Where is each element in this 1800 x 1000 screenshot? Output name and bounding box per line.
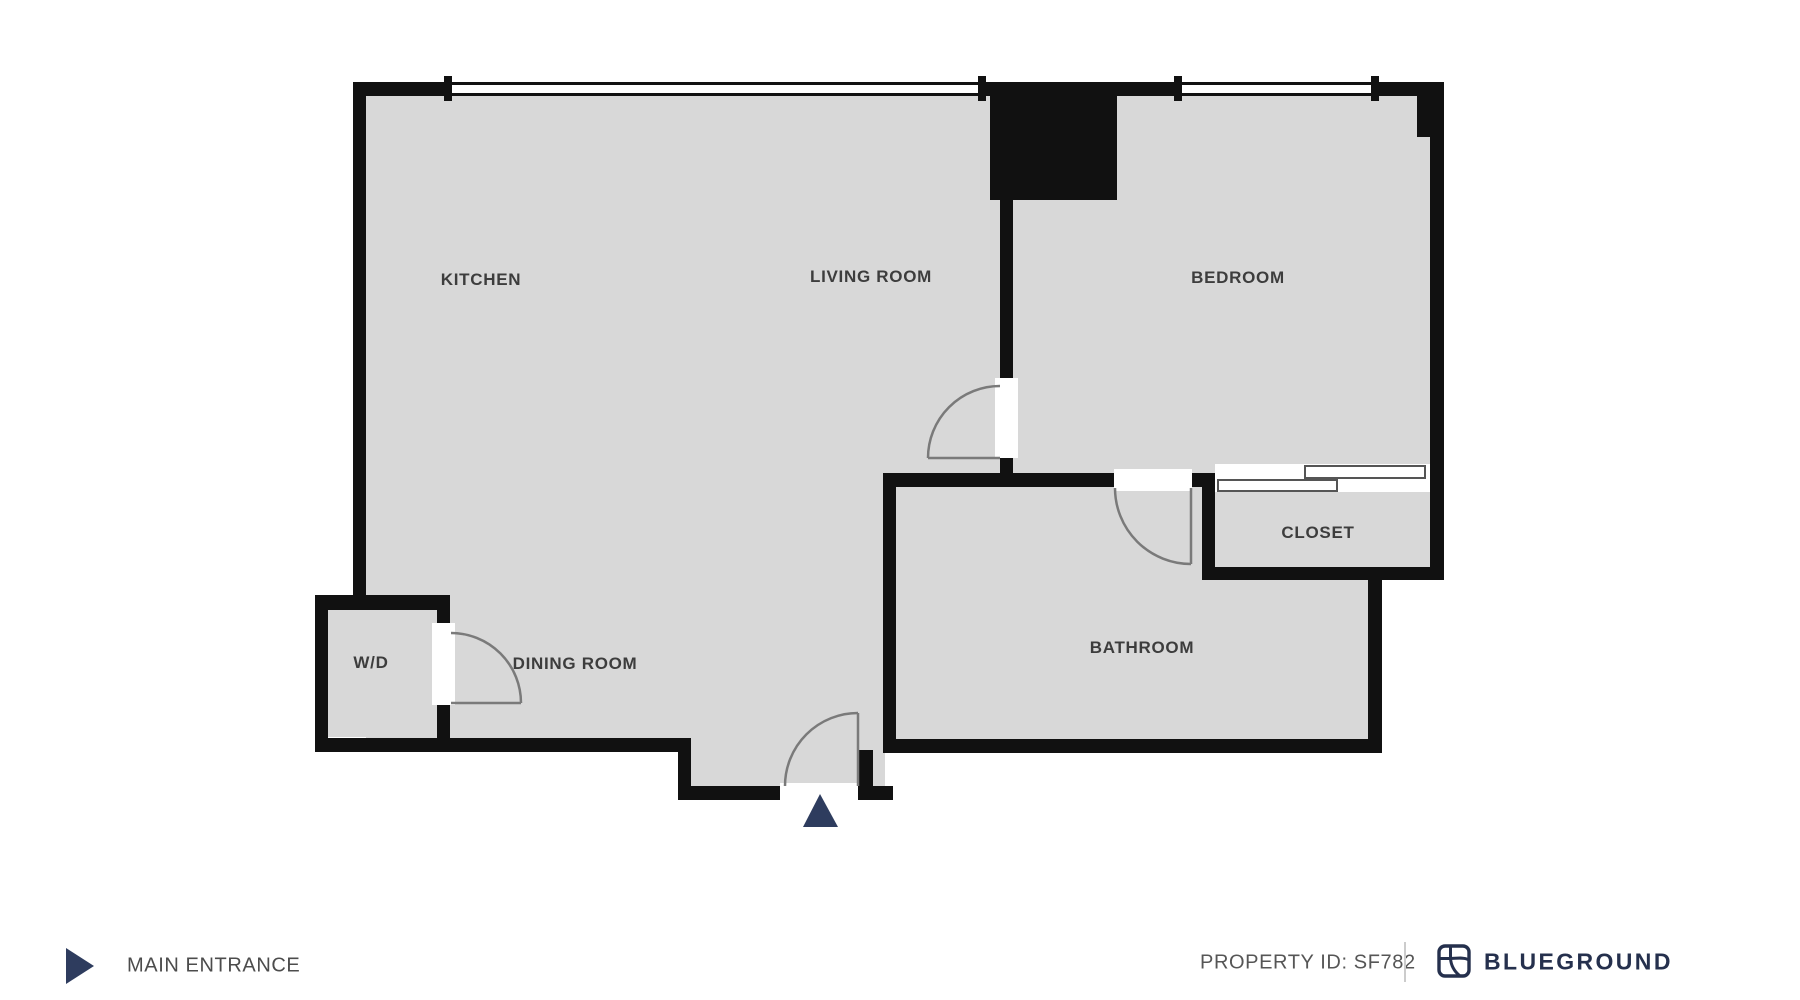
- wall-left: [353, 82, 366, 597]
- wall-closet-left: [1202, 487, 1215, 580]
- room-label-wd: W/D: [353, 653, 388, 673]
- wall-wd-left: [315, 595, 328, 752]
- brand-name: BLUEGROUND: [1484, 949, 1673, 976]
- wall-main-bottom: [315, 738, 691, 752]
- wall-bathroom-left: [883, 473, 896, 753]
- closet-sliding-doors: [1215, 464, 1430, 492]
- wall-bathroom-right: [1368, 567, 1382, 753]
- floor-washer-dryer: [328, 610, 437, 737]
- wall-entry-jamb: [858, 750, 873, 800]
- floor-plan-drawing: [0, 0, 1800, 1000]
- room-label-dining-room: DINING ROOM: [513, 654, 638, 674]
- property-id-label: PROPERTY ID: SF782: [1200, 952, 1416, 975]
- room-label-bathroom: BATHROOM: [1090, 638, 1194, 658]
- main-entrance-label: MAIN ENTRANCE: [127, 955, 300, 978]
- main-entrance-arrow-icon: [65, 947, 95, 985]
- blueground-logo-icon: [1437, 944, 1471, 978]
- room-label-bedroom: BEDROOM: [1191, 268, 1285, 288]
- room-label-closet: CLOSET: [1281, 523, 1354, 543]
- wall-bathroom-bottom: [890, 739, 1382, 753]
- room-label-living-room: LIVING ROOM: [810, 267, 932, 287]
- footer-divider: [1404, 942, 1406, 982]
- gap-wd-door: [432, 623, 455, 705]
- room-label-kitchen: KITCHEN: [441, 270, 521, 290]
- floor-areas: [328, 96, 1430, 787]
- wall-closet-bottom: [1202, 567, 1444, 580]
- wall-right: [1430, 82, 1444, 580]
- wall-wd-top: [315, 595, 450, 610]
- gap-bathroom-door: [1114, 469, 1192, 491]
- wall-shaft-block: [990, 96, 1117, 200]
- floor-plan-page: KITCHEN LIVING ROOM BEDROOM CLOSET BATHR…: [0, 0, 1800, 1000]
- gap-living-bedroom-door: [995, 378, 1018, 458]
- wall-corner-notch: [1417, 96, 1444, 137]
